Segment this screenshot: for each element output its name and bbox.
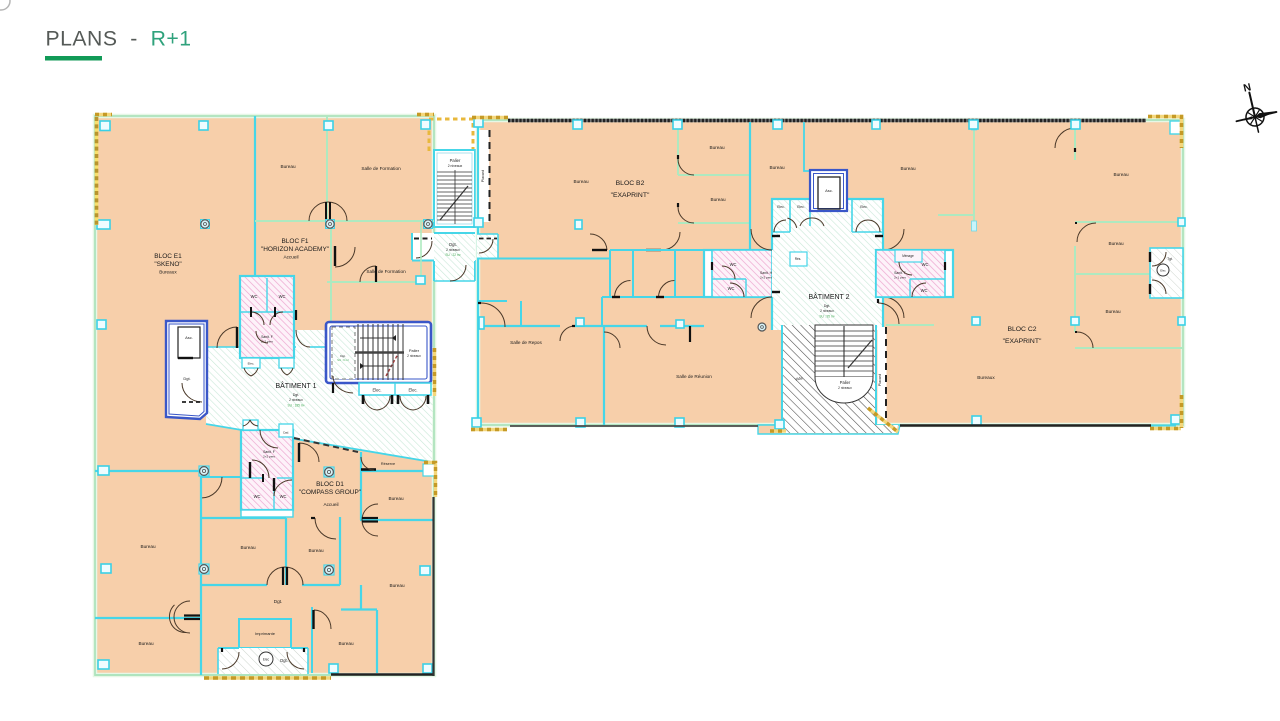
svg-text:Rés.: Rés.: [795, 257, 802, 261]
svg-text:Tgt.: Tgt.: [1167, 257, 1173, 261]
svg-text:Elec: Elec: [263, 658, 270, 662]
svg-text:2 niveaux: 2 niveaux: [289, 398, 303, 402]
svg-text:Bureau: Bureau: [1105, 309, 1121, 314]
svg-text:Dgt.: Dgt.: [293, 393, 300, 397]
svg-text:Elec.: Elec.: [372, 388, 381, 393]
svg-text:Bureau: Bureau: [1113, 172, 1129, 177]
svg-text:Bureau: Bureau: [389, 583, 405, 588]
svg-text:BLOC F1: BLOC F1: [281, 238, 308, 245]
svg-text:Palier: Palier: [450, 158, 461, 163]
svg-text:Sanit. H: Sanit. H: [760, 271, 773, 275]
svg-text:"HORIZON ACADEMY": "HORIZON ACADEMY": [261, 246, 330, 253]
svg-text:Bureau: Bureau: [710, 197, 726, 202]
svg-text:Asc.: Asc.: [825, 188, 833, 193]
svg-text:Bureau: Bureau: [1108, 241, 1124, 246]
svg-text:"EXAPRINT": "EXAPRINT": [611, 192, 650, 199]
svg-text:Réserve: Réserve: [381, 462, 395, 466]
svg-text:BLOC B2: BLOC B2: [616, 180, 645, 187]
svg-text:Bureau: Bureau: [388, 496, 404, 501]
svg-text:Bureau: Bureau: [573, 179, 589, 184]
svg-text:BÂTIMENT 2: BÂTIMENT 2: [808, 292, 849, 301]
svg-text:2 niveaux: 2 niveaux: [407, 354, 421, 358]
svg-text:WC: WC: [251, 294, 258, 299]
svg-text:Bureaux: Bureaux: [159, 270, 177, 275]
svg-text:SU : 95 m²: SU : 95 m²: [819, 315, 834, 319]
svg-text:2 niveaux: 2 niveaux: [838, 386, 852, 390]
svg-text:WC: WC: [280, 494, 287, 499]
svg-text:WC: WC: [728, 286, 735, 291]
svg-text:Bureau: Bureau: [709, 145, 725, 150]
svg-text:SU : 6 m²: SU : 6 m²: [337, 358, 349, 362]
svg-text:2 niveaux: 2 niveaux: [446, 248, 460, 252]
svg-text:Elec.: Elec.: [797, 205, 805, 209]
svg-text:WC: WC: [922, 262, 929, 267]
svg-text:Dgt.: Dgt.: [183, 376, 190, 381]
svg-text:Bureau: Bureau: [900, 166, 916, 171]
svg-text:Placard: Placard: [481, 170, 485, 182]
svg-text:Elec.: Elec.: [777, 205, 785, 209]
svg-text:Ménage: Ménage: [902, 254, 914, 258]
svg-text:WC: WC: [921, 288, 928, 293]
svg-text:2 niveaux: 2 niveaux: [448, 164, 463, 168]
svg-text:Dgt.: Dgt.: [824, 304, 831, 308]
svg-text:WC: WC: [254, 494, 261, 499]
svg-text:Salle de Repos: Salle de Repos: [510, 340, 542, 345]
svg-text:Asc.: Asc.: [185, 335, 193, 340]
svg-text:PLANS - R+1: PLANS - R+1: [46, 28, 192, 51]
svg-text:"SKENO": "SKENO": [154, 261, 182, 268]
svg-text:Accueil: Accueil: [323, 502, 338, 507]
svg-text:2 niveaux: 2 niveaux: [820, 309, 834, 313]
svg-text:Elec: Elec: [1160, 269, 1166, 273]
svg-text:2+2 pers: 2+2 pers: [263, 455, 275, 459]
svg-text:SU : 22 m²: SU : 22 m²: [445, 253, 460, 257]
svg-text:Palier: Palier: [840, 380, 851, 385]
svg-text:Palier: Palier: [409, 348, 420, 353]
svg-text:BLOC C2: BLOC C2: [1007, 326, 1036, 333]
svg-text:Cad.: Cad.: [283, 431, 290, 435]
svg-text:Dgt.: Dgt.: [280, 658, 288, 663]
svg-text:Salle de Formation: Salle de Formation: [361, 166, 401, 171]
svg-text:WC: WC: [730, 262, 737, 267]
svg-text:Bureau: Bureau: [138, 641, 154, 646]
svg-text:Dgt.: Dgt.: [274, 599, 283, 604]
svg-text:Imprimante: Imprimante: [255, 631, 276, 636]
svg-text:Sanit. F: Sanit. F: [261, 335, 273, 339]
svg-text:Bureau: Bureau: [338, 641, 354, 646]
svg-text:WC: WC: [279, 294, 286, 299]
svg-text:Bureau: Bureau: [280, 164, 296, 169]
svg-text:BÂTIMENT 1: BÂTIMENT 1: [275, 381, 316, 390]
svg-text:BLOC D1: BLOC D1: [316, 481, 344, 488]
svg-text:"EXAPRINT": "EXAPRINT": [1003, 338, 1042, 345]
svg-text:BLOC E1: BLOC E1: [154, 253, 182, 260]
svg-text:Placard: Placard: [878, 374, 882, 386]
svg-text:Bureaux: Bureaux: [977, 375, 995, 380]
svg-text:Elec.: Elec.: [248, 362, 255, 366]
svg-text:Salle de Réunion: Salle de Réunion: [676, 374, 712, 379]
svg-text:Bureau: Bureau: [769, 165, 785, 170]
svg-text:Dgt.: Dgt.: [449, 242, 457, 247]
svg-text:2+2 pers: 2+2 pers: [760, 276, 772, 280]
svg-text:Elec.: Elec.: [408, 388, 417, 393]
svg-text:Bureau: Bureau: [240, 545, 256, 550]
svg-text:2+1 pers: 2+1 pers: [894, 276, 906, 280]
svg-text:Elec.: Elec.: [860, 205, 868, 209]
svg-text:"COMPASS GROUP": "COMPASS GROUP": [299, 489, 362, 496]
svg-text:Bureau: Bureau: [308, 548, 324, 553]
svg-text:Sanit. F: Sanit. F: [894, 271, 906, 275]
svg-text:Sanit. F: Sanit. F: [263, 450, 275, 454]
svg-text:Accueil: Accueil: [283, 255, 298, 260]
svg-text:Salle de Formation: Salle de Formation: [366, 269, 406, 274]
svg-text:SU : 185 m²: SU : 185 m²: [287, 404, 304, 408]
svg-text:Bureau: Bureau: [140, 544, 156, 549]
